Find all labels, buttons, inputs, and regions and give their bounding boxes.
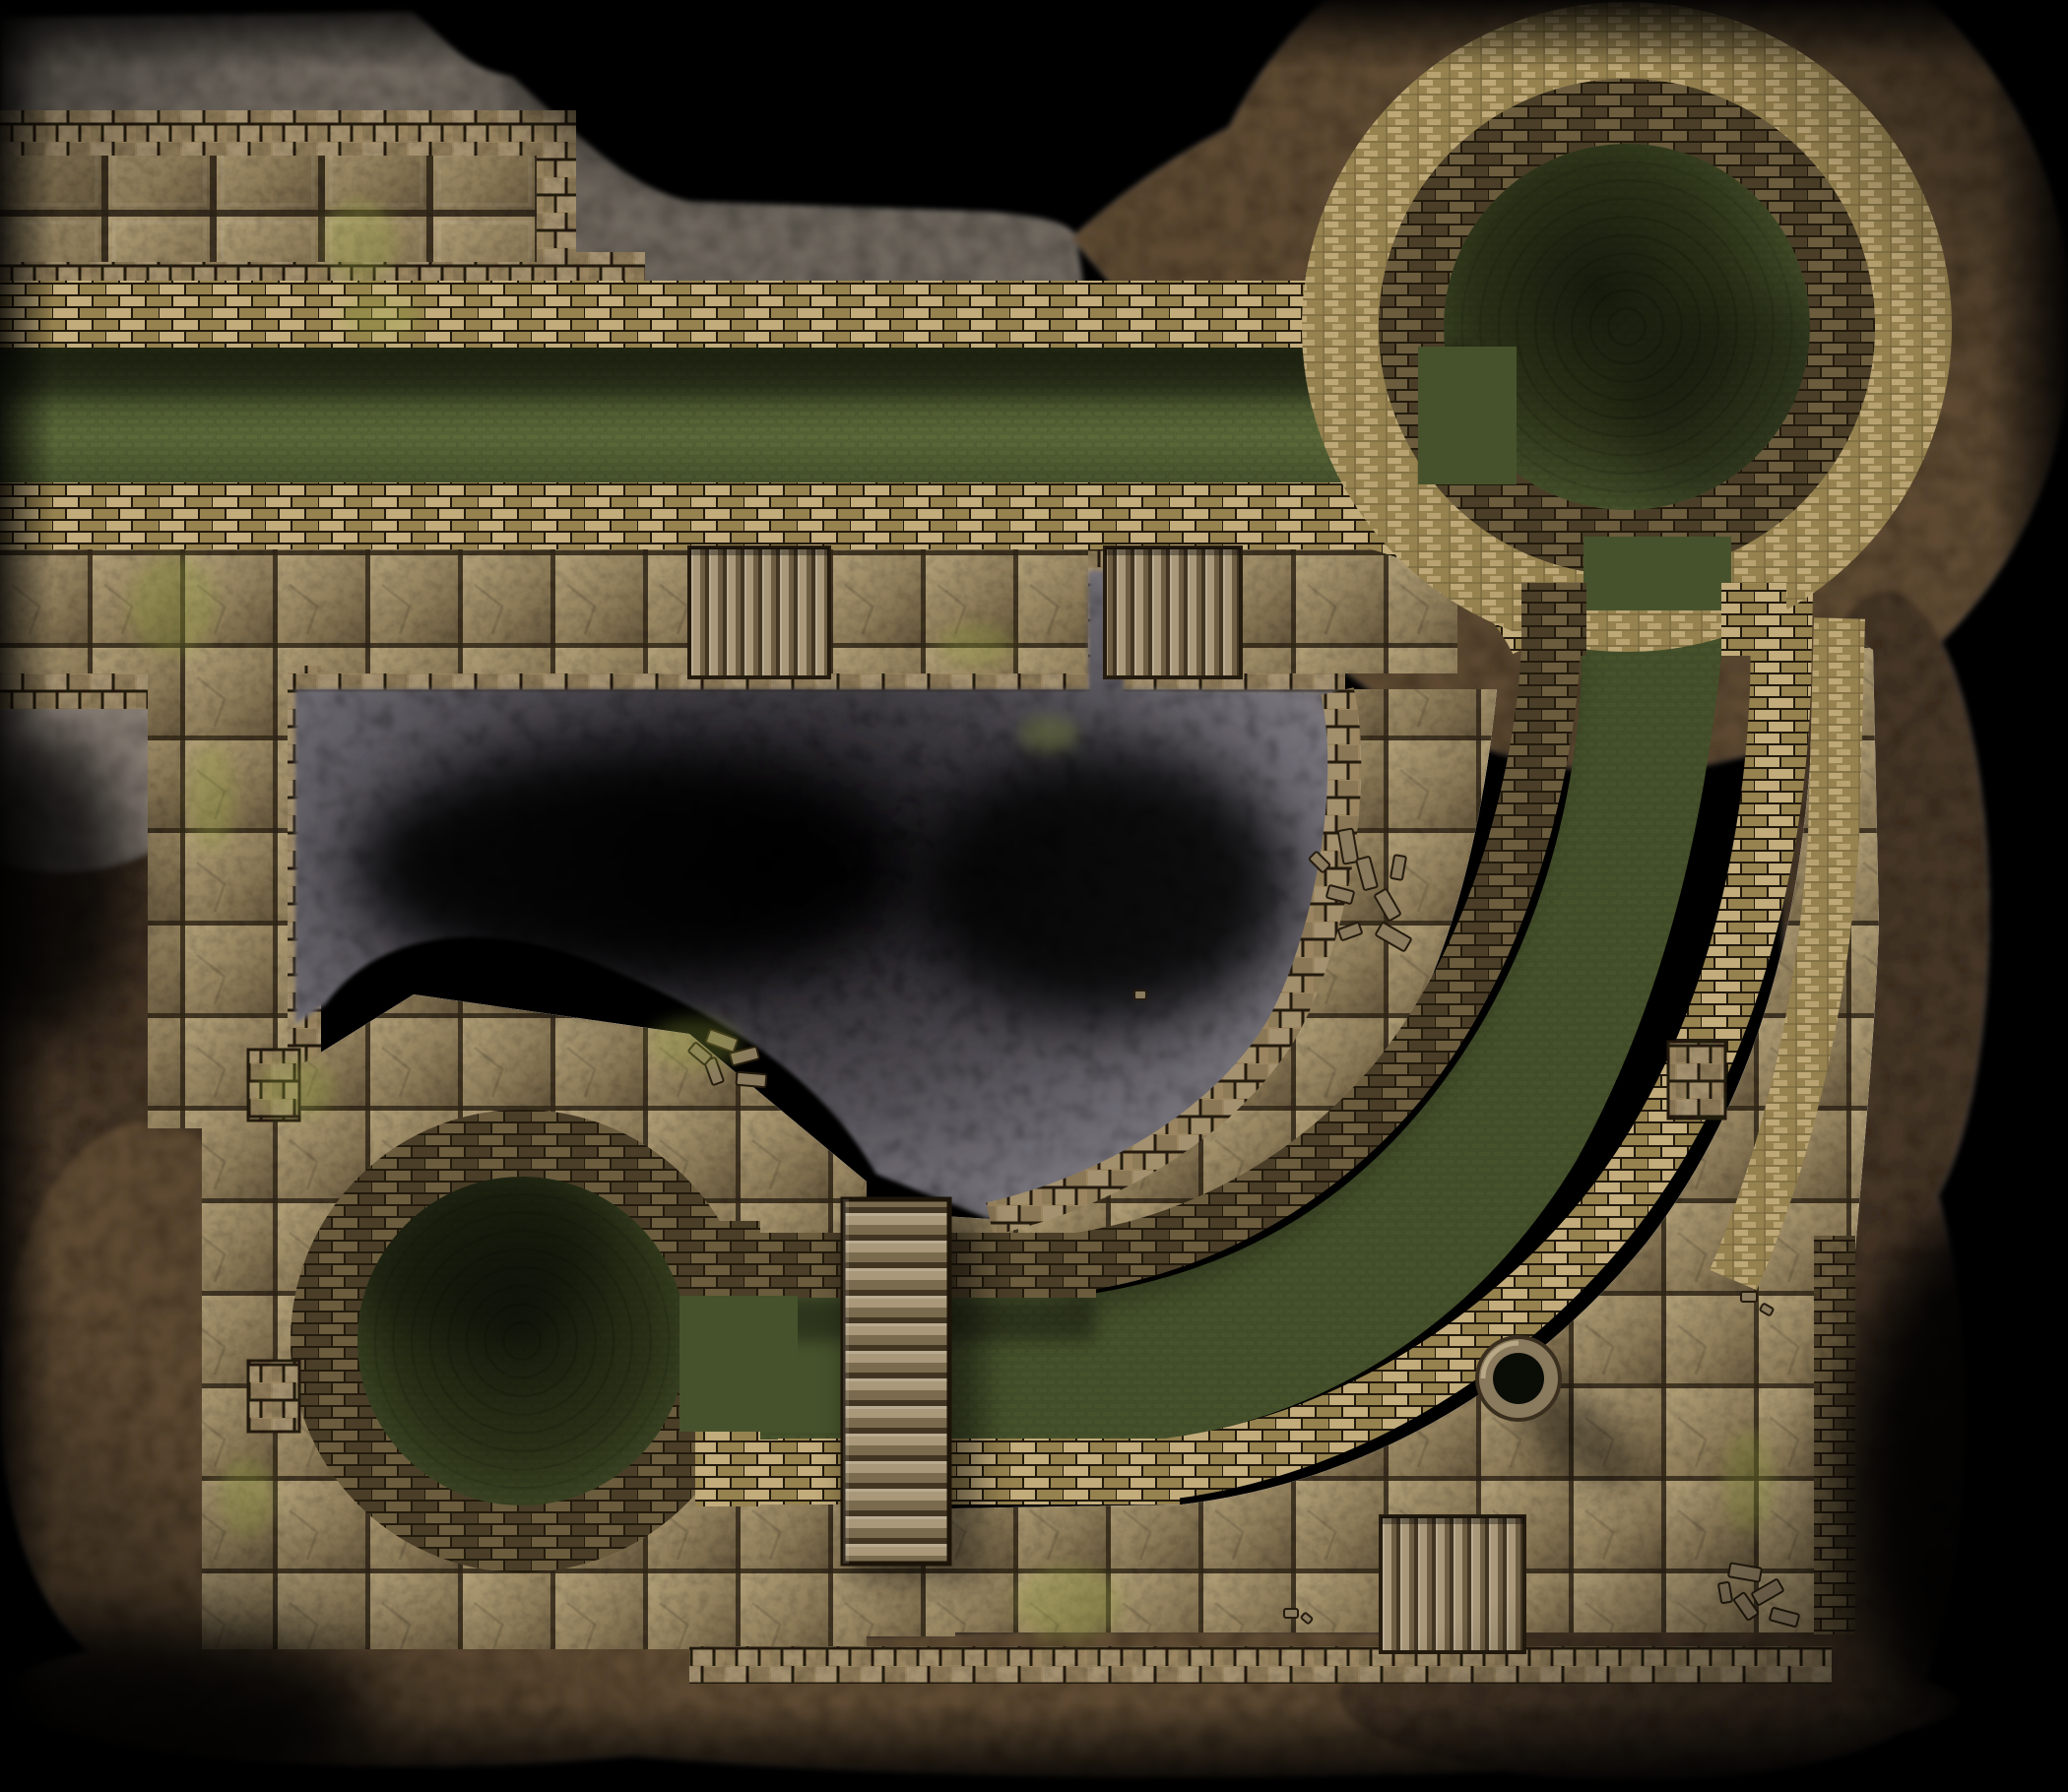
vignette-layer (0, 0, 2068, 1792)
vignette-radial (0, 0, 2068, 1792)
dungeon-battle-map[interactable] (0, 0, 2068, 1792)
dungeon-map-canvas (0, 0, 2068, 1792)
